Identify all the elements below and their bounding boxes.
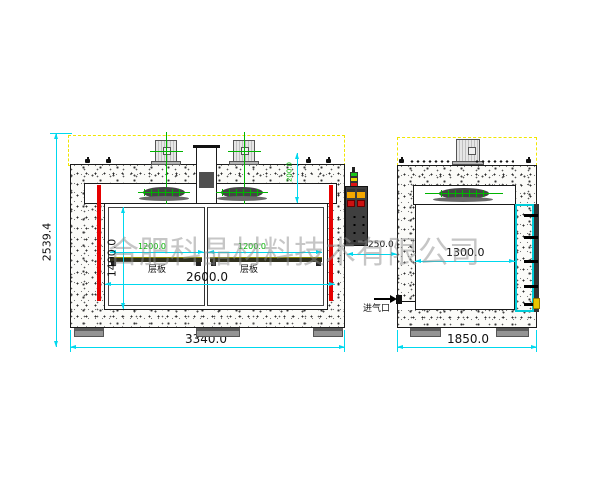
door-hinge — [524, 214, 538, 217]
dim-side-width: 1850.0 — [447, 333, 489, 345]
side-door — [515, 204, 534, 312]
bolt-icon — [526, 159, 531, 163]
side-fan-impeller-plate — [433, 197, 493, 202]
door-hinge — [524, 285, 538, 288]
door-hinge — [524, 236, 538, 239]
foot — [410, 328, 441, 337]
side-door-face — [534, 204, 539, 312]
oven-engineering-drawing: 层板 层板 1200.0 1200.0 2600.0 1400.0 200.0 … — [0, 0, 600, 500]
foot — [496, 328, 529, 337]
bolt-row — [409, 159, 451, 164]
dim-line-side-width — [397, 347, 537, 348]
air-inlet-label: 进气口 — [363, 305, 390, 314]
bolt-icon — [399, 159, 404, 163]
motor-junction-box — [468, 147, 476, 155]
side-view: 1300.0 进气口 1850.0 — [0, 0, 600, 500]
dim-chamber-depth: 1300.0 — [446, 247, 485, 258]
air-inlet-arrowhead-icon — [390, 295, 397, 303]
bolt-row — [474, 159, 514, 164]
side-impeller-ticks — [441, 190, 487, 197]
door-latch — [533, 298, 540, 309]
door-hinge — [524, 260, 538, 263]
dim-line-chamber-depth — [415, 261, 515, 262]
